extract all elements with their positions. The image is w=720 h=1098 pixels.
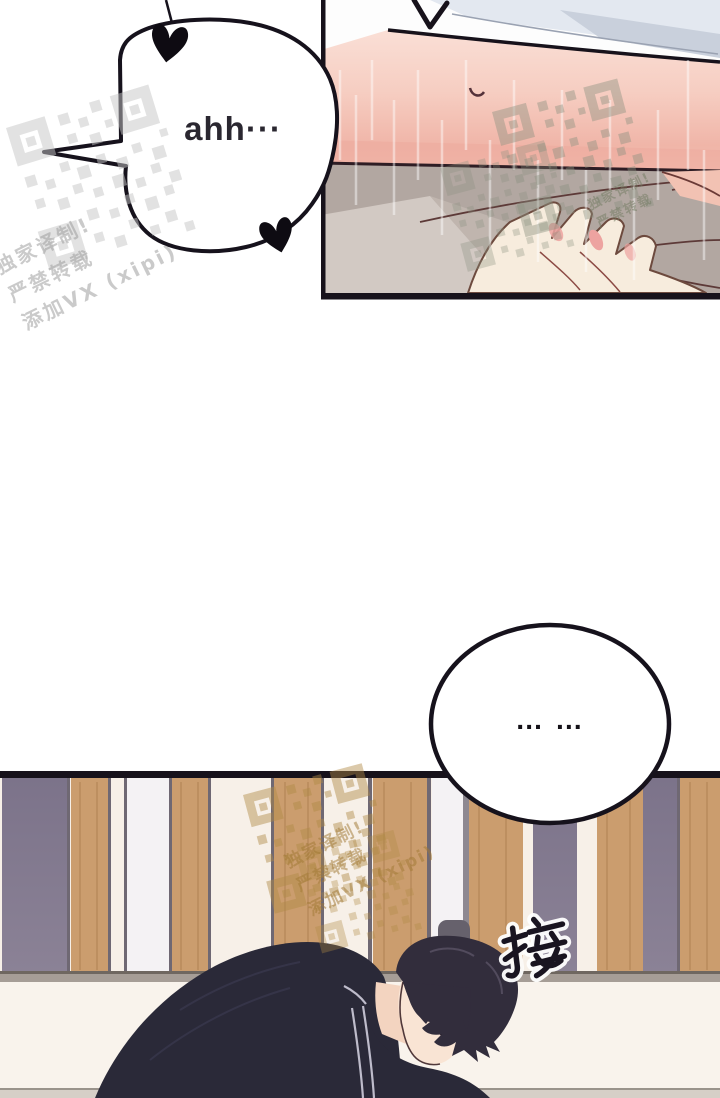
speech-bubble-pause	[431, 625, 669, 823]
speech-bubble-ahh	[44, 0, 337, 256]
comic-artwork	[0, 0, 720, 1098]
sfx-onomatopoeia	[501, 916, 568, 979]
comic-page: ahh··· … … 独家译制! 严禁转载 添加VX (xipi) 独家译制! …	[0, 0, 720, 1098]
